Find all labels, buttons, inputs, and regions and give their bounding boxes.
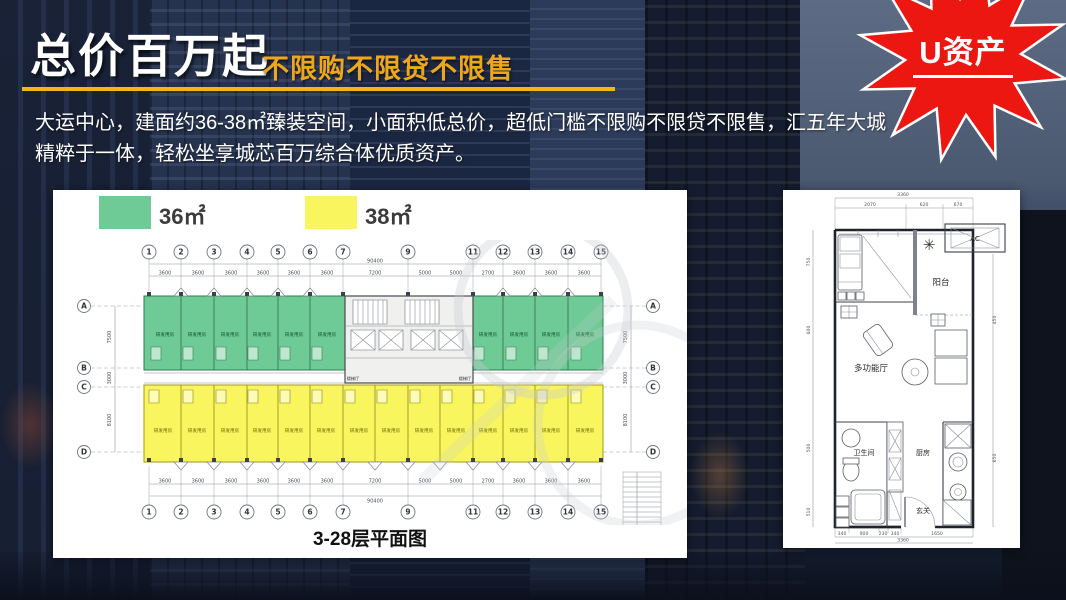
plant-icon: ✳ [923,236,936,254]
svg-text:B: B [650,364,656,373]
dim: 3600 [225,479,238,485]
svg-text:A: A [81,302,87,311]
dim: 7200 [369,479,382,485]
kitchen-label: 厨房 [916,448,930,457]
axis-left: A B C D [78,300,91,459]
unit-label: 研发用房 [154,427,173,434]
description-text: 大运中心，建面约36-38㎡臻装空间，小面积低总价，超低门槛不限购不限贷不限售，… [35,108,895,170]
legend-swatch-36 [99,196,151,229]
dim: 340 [838,531,847,537]
svg-text:C: C [650,383,656,392]
balcony-marks-top [174,288,575,296]
svg-text:D: D [650,448,656,457]
ac-label: AC [970,235,980,243]
dim: 650 [992,454,998,463]
svg-text:4: 4 [244,508,249,517]
unit-label: 研发用房 [221,331,240,338]
dim: 3360 [897,538,909,544]
dim: 510 [806,508,812,517]
svg-text:1: 1 [146,248,151,257]
svg-text:3: 3 [211,248,216,257]
description-line2: 精粹于一体，轻松坐享城芯百万综合体优质资产。 [35,143,475,165]
legend-label-38: 38㎡ [365,199,411,231]
dim: 3600 [288,271,301,277]
dim: 3000 [623,372,629,385]
balcony-partition-wall [913,230,917,315]
bath-label: 卫生间 [854,448,875,457]
unit-label: 研发用房 [285,331,304,338]
svg-text:7: 7 [340,508,345,517]
unitplan-panel: 3360 2070 620 670 750 600 500 510 450 65… [783,190,1020,548]
unit-label: 研发用房 [318,331,337,338]
svg-text:11: 11 [468,508,478,517]
svg-text:2: 2 [178,248,183,257]
svg-text:2: 2 [178,508,183,517]
unit-label: 研发用房 [188,427,207,434]
top-total-dim: 90400 [367,259,383,265]
kitchen-fixtures [945,424,971,500]
svg-text:6: 6 [307,248,312,257]
unit-label: 研发用房 [350,427,369,434]
hall-label: 多功能厅 [854,363,889,374]
dim: 3600 [192,479,205,485]
dim: 2070 [864,202,876,208]
svg-text:A: A [650,302,656,311]
bed [838,235,862,290]
dim: 3600 [513,271,526,277]
dim: 900 [860,531,869,537]
floorplan-drawing: 90400 90400 3600 3600 3600 3600 3600 360… [53,240,687,525]
unit-label: 研发用房 [382,427,401,434]
unit-label: 研发用房 [188,331,207,338]
svg-text:7: 7 [340,248,345,257]
dim: 500 [806,444,812,453]
dim: 3600 [321,271,334,277]
floorplan-caption: 3-28层平面图 [53,524,687,551]
dim: 3000 [107,372,113,385]
dim: 230 [879,531,888,537]
unit-label: 研发用房 [415,427,434,434]
dim: 3360 [897,192,909,198]
unit-label: 研发用房 [542,331,561,338]
legend-label-36: 36㎡ [159,199,205,231]
svg-text:3: 3 [211,508,216,517]
svg-text:B: B [81,364,87,373]
dim: 3600 [513,479,526,485]
dim: 3600 [545,271,558,277]
unit-label: 研发用房 [447,427,466,434]
core-label-right: 楼梯厅 [459,375,472,382]
area-legend: 36㎡ 38㎡ [53,196,687,236]
dim: 3600 [225,271,238,277]
balcony-label: 阳台 [932,277,949,288]
dim: 1650 [931,531,943,537]
gold-divider [22,87,615,91]
dim: 3600 [288,479,301,485]
promo-slide: { "slide": { "title": "总价百万起", "subtitle… [0,0,1066,600]
dim: 620 [920,202,929,208]
svg-text:9: 9 [405,248,410,257]
svg-text:C: C [81,383,87,392]
axis-top: 1 2 3 4 5 6 7 9 11 12 13 14 15 [142,245,608,259]
description-line1: 大运中心，建面约36-38㎡臻装空间，小面积低总价，超低门槛不限购不限贷不限售，… [35,112,886,134]
bathroom-fixtures [836,429,885,527]
unit-label: 研发用房 [285,427,304,434]
unitplan-drawing: 3360 2070 620 670 750 600 500 510 450 65… [783,190,1020,548]
dim: 5000 [419,271,432,277]
sofa [862,323,894,357]
axis-bottom: 1 2 3 4 5 6 7 9 11 12 13 14 15 [142,505,608,519]
dim: 670 [954,202,963,208]
legend-swatch-38 [305,196,357,229]
dim: 3600 [257,271,270,277]
dim: 7200 [369,271,382,277]
svg-text:1: 1 [146,508,151,517]
round-table [902,359,928,385]
dim: 3600 [192,271,205,277]
unit-label: 研发用房 [542,427,561,434]
street-light-glow-left [0,380,60,470]
dim: 3600 [159,271,172,277]
dim: 8100 [623,414,629,427]
svg-text:13: 13 [530,508,540,517]
svg-text:14: 14 [563,248,573,257]
area-schedule-table [623,472,661,525]
svg-text:6: 6 [307,508,312,517]
dim: 8100 [107,414,113,427]
dim: 450 [992,316,998,325]
street-light-glow-right [690,430,750,520]
unit-label: 研发用房 [479,331,498,338]
shoe-cabinet [943,500,971,525]
street-ground [0,552,1066,600]
dim: 3600 [159,479,172,485]
entry-label: 玄关 [916,506,930,515]
svg-text:14: 14 [563,508,573,517]
hatch-cabinet [887,422,903,520]
page-title: 总价百万起 [30,20,270,86]
dim: 3600 [321,479,334,485]
dim: 2700 [482,271,495,277]
svg-text:5: 5 [275,248,280,257]
dresser [838,292,864,300]
wardrobe-slide-line [863,236,911,298]
wall-equipment [931,314,945,326]
dim: 3600 [578,271,591,277]
badge-label-wrap: U资产 [893,27,1033,78]
dim: 600 [806,326,812,335]
balcony-marks-bottom [174,462,575,470]
svg-text:4: 4 [244,248,249,257]
desk [841,306,857,318]
dim: 340 [891,531,900,537]
svg-text:9: 9 [405,508,410,517]
page-subtitle: 不限购不限贷不限售 [262,47,514,86]
dim: 2700 [482,479,495,485]
unit-label: 研发用房 [156,331,175,338]
ac-platform: AC [945,224,1005,252]
unit-label: 研发用房 [576,427,595,434]
svg-text:12: 12 [498,248,508,257]
bench-cabinets [935,330,967,384]
floorplan-panel: 36㎡ 38㎡ 90400 90400 3600 3600 3600 3600 … [53,190,687,558]
bottom-total-dim: 90400 [367,499,383,505]
core-label-left: 楼梯厅 [347,375,360,382]
dim: 7500 [107,331,113,344]
svg-text:5: 5 [275,508,280,517]
svg-text:D: D [81,448,87,457]
dim: 3600 [257,479,270,485]
unit-label: 研发用房 [253,427,272,434]
unit-label: 研发用房 [510,331,529,338]
unit-label: 研发用房 [317,427,336,434]
dim: 5000 [450,479,463,485]
unit-label: 研发用房 [221,427,240,434]
svg-text:12: 12 [498,508,508,517]
unit-label: 研发用房 [253,331,272,338]
dim: 750 [806,258,812,267]
svg-text:13: 13 [530,248,540,257]
badge-label: U资产 [913,27,1012,78]
unit-label: 研发用房 [510,427,529,434]
dim: 3600 [578,479,591,485]
